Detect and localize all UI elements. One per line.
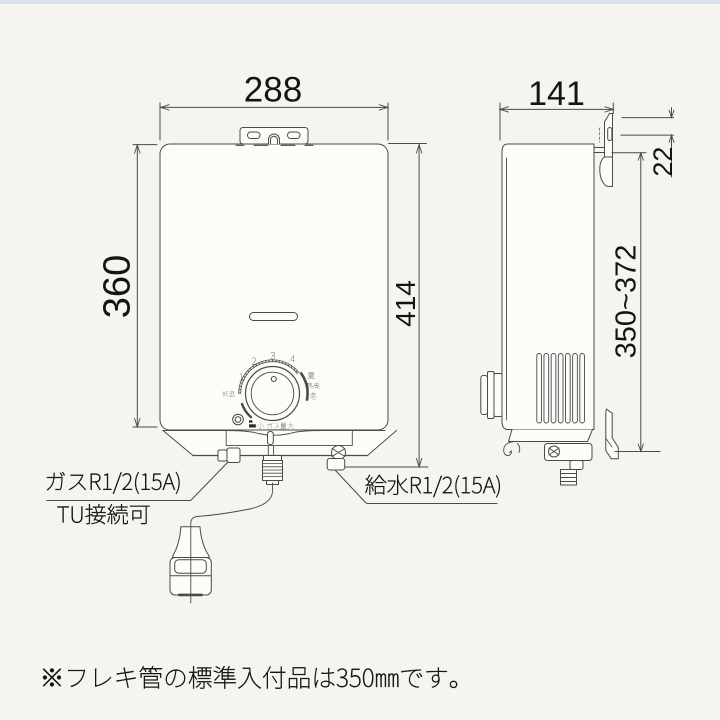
svg-text:141: 141: [528, 75, 585, 113]
svg-text:414: 414: [390, 280, 421, 327]
svg-text:350~372: 350~372: [611, 245, 643, 359]
svg-text:360: 360: [97, 255, 139, 318]
svg-text:22: 22: [648, 147, 678, 177]
svg-text:288: 288: [244, 70, 302, 109]
